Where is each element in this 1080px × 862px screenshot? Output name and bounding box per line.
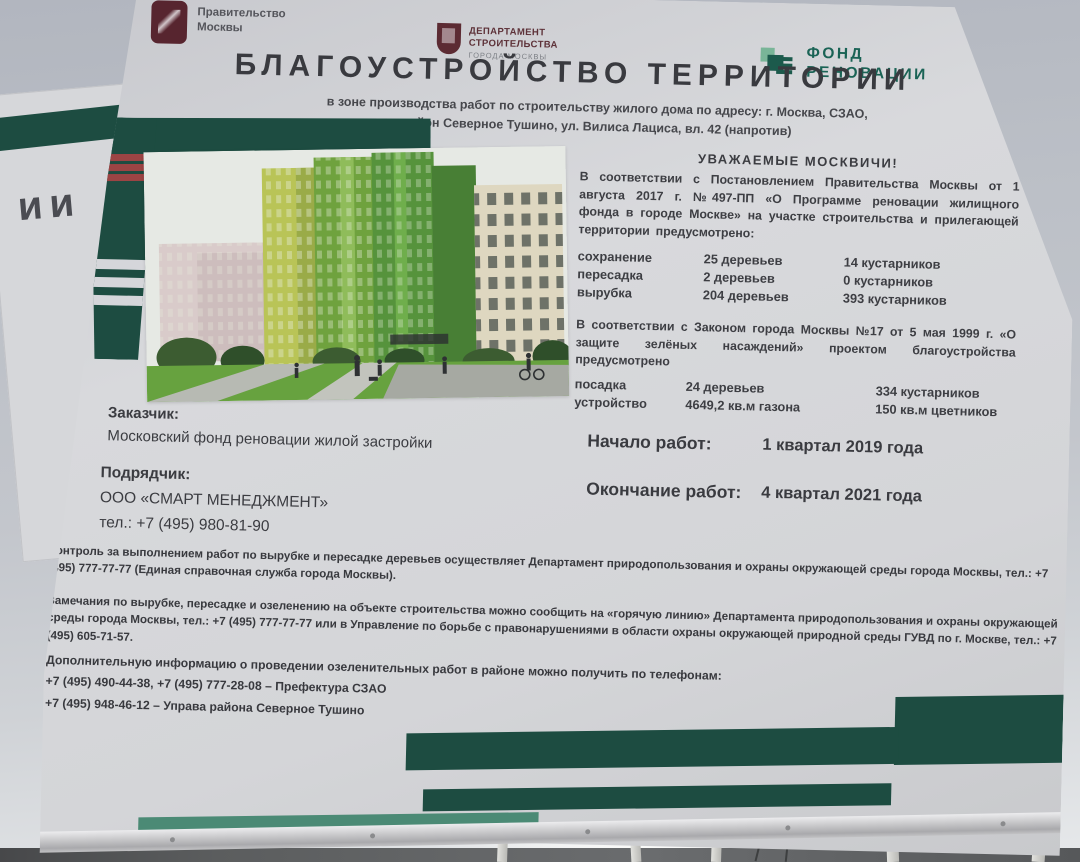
moscow-government-label: Правительство Москвы: [197, 1, 286, 37]
table-row-value: 24 деревьев: [686, 379, 876, 398]
customer-block: Заказчик: Московский фонд реновации жило…: [107, 401, 433, 455]
preservation-table: сохранение 25 деревьев 14 кустарников пе…: [577, 248, 1038, 310]
teal-bar-tall-right: [894, 695, 1064, 765]
additional-info-line1: +7 (495) 490-44-38, +7 (495) 777-28-08 –…: [45, 674, 386, 696]
table-row-label: пересадка: [577, 266, 703, 284]
background-sign-partial-text: ии: [16, 180, 83, 230]
moscow-coat-of-arms-icon: [151, 0, 188, 44]
table-row-trees: 25 деревьев: [704, 251, 844, 269]
customer-label: Заказчик:: [108, 404, 179, 423]
table-row-value: 4649,2 кв.м газона: [685, 397, 875, 416]
control-paragraph: Контроль за выполнением работ по вырубке…: [48, 542, 1049, 600]
moscow-government-logo: Правительство Москвы: [151, 0, 286, 46]
additional-info-line2: +7 (495) 948-46-12 – Управа района Север…: [45, 696, 365, 718]
teal-bar-thick: [406, 727, 899, 770]
table-row-value: 150 кв.м цветников: [875, 401, 1025, 420]
start-date-value: 1 квартал 2019 года: [762, 435, 1047, 463]
contractor-phone: тел.: +7 (495) 980-81-90: [99, 514, 269, 535]
customer-value: Московский фонд реновации жилой застройк…: [107, 427, 432, 452]
work-dates-block: Начало работ: 1 квартал 2019 года Оконча…: [586, 431, 1047, 511]
planting-table: посадка 24 деревьев 334 кустарников устр…: [574, 376, 1035, 420]
additional-info-paragraph: Дополнительную информацию о проведении о…: [45, 650, 946, 735]
department-shield-icon: [437, 23, 462, 55]
end-date-label: Окончание работ:: [586, 479, 761, 504]
end-date-value: 4 квартал 2021 года: [761, 483, 1046, 511]
contractor-value: ООО «СМАРТ МЕНЕДЖМЕНТ»: [100, 489, 329, 511]
photo-scene: ии Правительство Москвы ДЕПАРТАМЕНТ СТРО…: [0, 0, 1080, 862]
start-date-label: Начало работ:: [587, 431, 762, 456]
table-row-shrubs: 0 кустарников: [843, 273, 1013, 292]
resolution-paragraph: В соответствии с Постановлением Правител…: [578, 168, 1020, 249]
information-board: Правительство Москвы ДЕПАРТАМЕНТ СТРОИТЕ…: [39, 0, 1079, 862]
table-row-value: 334 кустарников: [876, 383, 1026, 402]
table-row-shrubs: 14 кустарников: [844, 255, 1014, 274]
table-row-label: устройство: [574, 394, 685, 412]
contractor-label: Подрядчик:: [100, 464, 190, 483]
table-row-label: посадка: [575, 376, 686, 394]
law-paragraph: В соответствии с Законом города Москвы №…: [575, 316, 1016, 379]
table-row-label: вырубка: [577, 284, 703, 302]
table-row-label: сохранение: [578, 248, 704, 266]
board-panel: Правительство Москвы ДЕПАРТАМЕНТ СТРОИТЕ…: [40, 0, 1080, 856]
contractor-block: Подрядчик: ООО «СМАРТ МЕНЕДЖМЕНТ» тел.: …: [99, 461, 329, 541]
table-row-trees: 2 деревьев: [703, 269, 843, 287]
table-row-shrubs: 393 кустарников: [843, 291, 1013, 310]
development-rendering-image: [143, 146, 569, 402]
table-row-trees: 204 деревьев: [703, 287, 843, 305]
teal-bar-thin: [423, 783, 892, 811]
